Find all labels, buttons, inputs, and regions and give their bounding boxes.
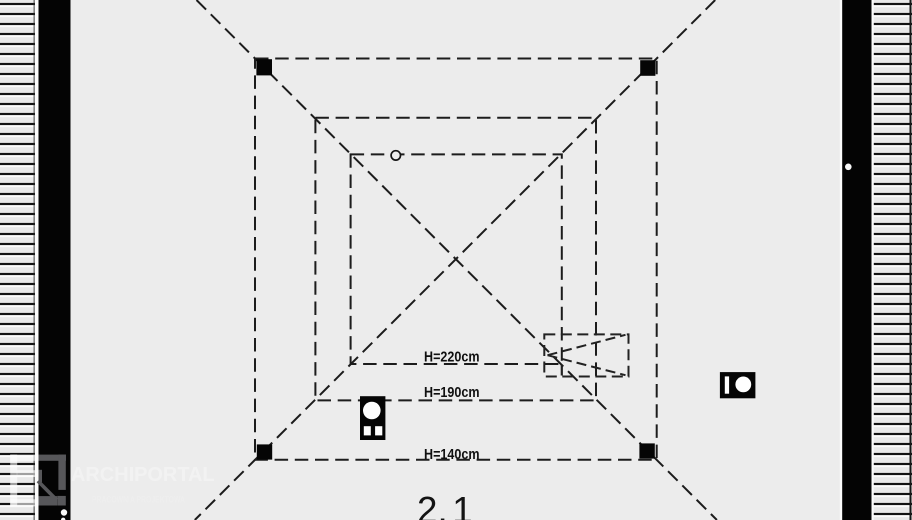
svg-text:H=140cm: H=140cm <box>424 447 480 463</box>
svg-text:H=190cm: H=190cm <box>424 385 480 401</box>
svg-text:PRACOWNIA PROJEKTOWA: PRACOWNIA PROJEKTOWA <box>92 495 185 506</box>
svg-text:H=220cm: H=220cm <box>424 350 480 366</box>
svg-text:ARCHIPORTAL: ARCHIPORTAL <box>71 463 215 486</box>
svg-text:2.1: 2.1 <box>417 490 473 520</box>
